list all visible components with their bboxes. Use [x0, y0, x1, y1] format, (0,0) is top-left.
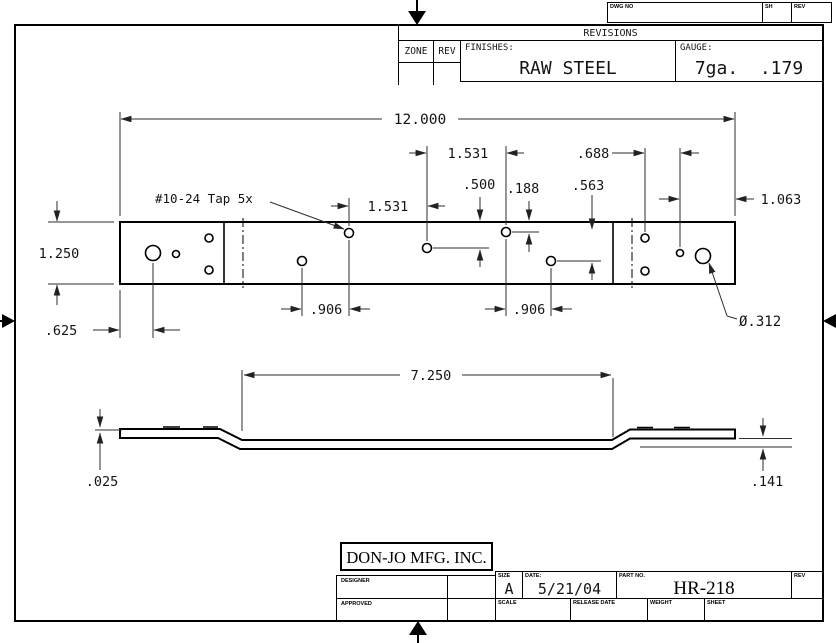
dim-pitch-688: .688: [577, 146, 610, 162]
extension-lines: [48, 112, 792, 471]
part-no-value: HR-218: [617, 578, 791, 600]
finishes-label: FINISHES:: [465, 43, 514, 53]
title-block: DON-JO MFG. INC. DESIGNER APPROVED SIZE …: [336, 542, 823, 621]
zone-label: ZONE: [399, 46, 433, 57]
rev-column-label: REV: [434, 46, 460, 57]
dim-hole-diameter: Ø.312: [739, 314, 781, 330]
company-name: DON-JO MFG. INC.: [342, 548, 491, 568]
dim-pitch-a: 1.531: [368, 199, 409, 215]
gauge-value: 7ga. .179: [676, 58, 822, 79]
dim-flat-length: 7.250: [411, 368, 452, 384]
right-registration-arrow-icon: [823, 314, 836, 328]
dim-bar-height: 1.250: [39, 246, 80, 262]
zone-column-line: [398, 62, 399, 85]
left-area-row-line: [337, 598, 495, 599]
dimension-lines: [57, 119, 763, 466]
revisions-title: REVISIONS: [399, 28, 822, 39]
dim-end-offset: .625: [45, 323, 78, 339]
dim-offset-right: .141: [751, 474, 784, 490]
weight-label: WEIGHT: [650, 600, 672, 606]
scale-label: SCALE: [498, 600, 517, 606]
gauge-label: GAUGE:: [680, 43, 713, 53]
date-value: 5/21/04: [523, 580, 616, 598]
drawing-sheet: 12.000 1.250 .625 #10-24 Tap 5x 1.531 1.…: [0, 0, 836, 643]
rev-label-title: REV: [794, 573, 805, 579]
dim-pitch-left-906: .906: [310, 302, 343, 318]
rev-column-line: [433, 62, 434, 85]
rev-label-top: REV: [794, 4, 805, 10]
sheet-label: SHEET: [707, 600, 725, 606]
size-label: SIZE: [498, 573, 510, 579]
dim-offset-left: .025: [86, 474, 119, 490]
dim-from-top-500: .500: [463, 177, 496, 193]
sh-label: SH: [765, 4, 773, 10]
bottom-registration-arrow-icon: [409, 621, 427, 635]
tap-note: #10-24 Tap 5x: [155, 191, 253, 206]
profile-view: [120, 427, 735, 449]
dim-from-top-188: .188: [507, 181, 540, 197]
designer-label: DESIGNER: [341, 578, 370, 584]
date-label: DATE:: [525, 573, 541, 579]
dim-pitch-right-906: .906: [513, 302, 546, 318]
release-date-label: RELEASE DATE: [573, 600, 615, 606]
size-value: A: [496, 580, 522, 598]
left-registration-arrow-icon: [2, 314, 15, 328]
dwg-no-label: DWG NO: [610, 4, 633, 10]
finishes-value: RAW STEEL: [461, 58, 675, 79]
holes: [146, 228, 711, 276]
revisions-block: REVISIONS ZONE REV FINISHES: RAW STEEL G…: [398, 25, 823, 85]
dim-step-563: .563: [572, 178, 605, 194]
top-registration-arrow-icon: [408, 11, 426, 25]
dim-overall-width: 12.000: [394, 112, 446, 128]
approved-label: APPROVED: [341, 601, 372, 607]
dim-pitch-b: 1.531: [448, 146, 489, 162]
dim-end-1063: 1.063: [761, 192, 802, 208]
